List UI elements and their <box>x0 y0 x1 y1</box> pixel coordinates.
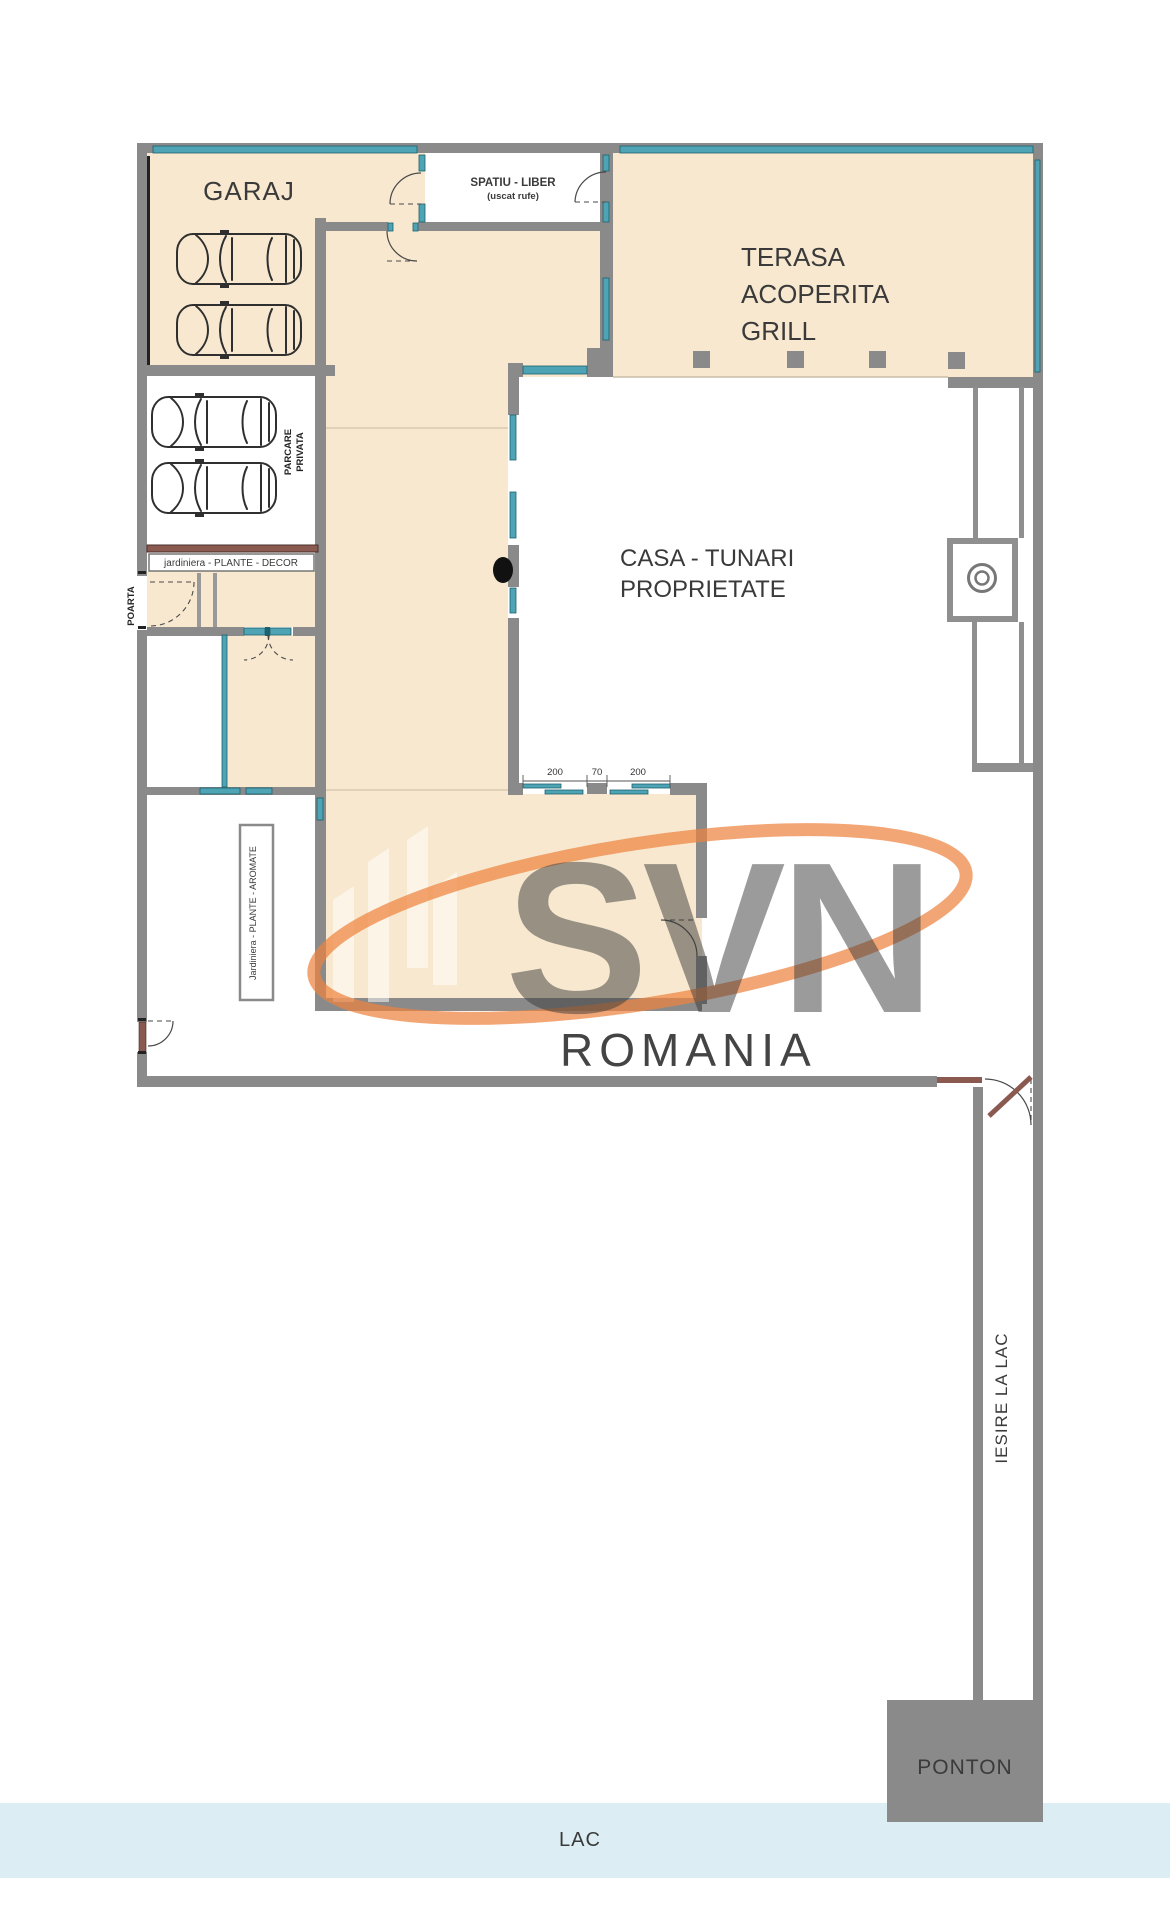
door-post <box>265 627 270 636</box>
dim-value: 200 <box>547 767 563 778</box>
wall-left <box>137 143 147 576</box>
window <box>603 278 609 340</box>
hall-left-wall <box>315 218 326 794</box>
terrace-label: TERASA <box>741 242 846 272</box>
wall-right <box>1033 143 1043 1700</box>
walkway-wall <box>972 622 977 763</box>
hinge-mark <box>138 571 146 574</box>
window <box>246 788 272 794</box>
window <box>317 798 323 820</box>
closet-line <box>213 573 217 627</box>
door-jamb <box>419 155 425 171</box>
hinge-mark <box>138 1051 146 1054</box>
terrace-label: GRILL <box>741 316 816 346</box>
property-label: CASA - TUNARI <box>620 545 794 572</box>
closet-line <box>197 573 201 627</box>
terrace-post <box>948 352 965 369</box>
floor-plan: jardiniera - PLANTE - DECOR Jardiniera -… <box>0 0 1170 1915</box>
slider-wall-corner <box>670 783 707 795</box>
hall-lower <box>326 377 508 794</box>
window <box>270 628 291 635</box>
sliding-door <box>523 784 561 788</box>
gate-leaf <box>937 1077 982 1083</box>
wall-block <box>587 348 613 377</box>
laundry-bottom-wall <box>315 222 388 231</box>
walkway-wall <box>1019 622 1024 763</box>
terrace-post <box>693 351 710 368</box>
wall-bottom <box>137 1076 937 1087</box>
window <box>510 415 516 460</box>
watermark-brand: ROMANIA <box>560 1024 817 1076</box>
window-band <box>153 146 417 153</box>
watermark-logo: SVN <box>505 817 929 1058</box>
slider-wall-center <box>587 783 607 794</box>
vestibule-wall <box>293 627 315 636</box>
door-jamb <box>603 155 609 171</box>
garage-bottom-wall <box>137 365 335 376</box>
sliding-door <box>632 784 670 788</box>
walkway-wall <box>1019 387 1024 538</box>
lake-path-wall <box>973 1087 983 1700</box>
laundry-bottom-wall <box>418 222 600 231</box>
garage-label: GARAJ <box>203 176 295 206</box>
door-jamb <box>388 223 393 231</box>
wall-left <box>137 630 147 1022</box>
hall-right-wall <box>508 618 519 787</box>
window <box>510 492 516 538</box>
vestibule-wall <box>147 627 244 636</box>
laundry-label: SPATIU - LIBER <box>470 177 556 189</box>
door-jamb <box>413 223 418 231</box>
pontoon-label: PONTON <box>917 1756 1012 1779</box>
wall-block <box>508 363 523 377</box>
planter-aromatic-label: Jardiniera - PLANTE - AROMATE <box>248 846 258 980</box>
grill-icon <box>969 565 996 592</box>
hall-right-wall <box>508 377 519 415</box>
lake-label: LAC <box>559 1829 601 1851</box>
terrace-post <box>787 351 804 368</box>
lake-exit-label: IESIRE LA LAC <box>992 1332 1011 1463</box>
planter-decor-bar <box>147 545 318 552</box>
door-jamb <box>603 202 609 222</box>
hinge-mark <box>138 1018 146 1021</box>
walkway-end-wall <box>972 763 1033 772</box>
side-door-leaf <box>139 1022 146 1052</box>
column-marker <box>493 557 513 583</box>
walkway-wall <box>973 387 978 538</box>
garden-fence <box>222 635 227 787</box>
pontoon: PONTON <box>887 1700 1043 1822</box>
laundry-sublabel: (uscat rufe) <box>487 191 539 202</box>
property-label: PROPRIETATE <box>620 576 786 603</box>
garage-door-line <box>147 156 150 365</box>
sliding-door <box>545 790 583 794</box>
gate-label: POARTA <box>126 586 137 626</box>
window-band <box>620 146 1033 153</box>
garage-extension <box>315 153 425 222</box>
slider-wall-anchor <box>508 783 523 795</box>
sliding-door <box>610 790 648 794</box>
planter-decor-label: jardiniera - PLANTE - DECOR <box>163 558 298 569</box>
entry-vestibule <box>147 571 315 627</box>
window <box>523 366 587 374</box>
hall-upper <box>315 222 600 377</box>
terrace-bottom-wall <box>948 377 1033 388</box>
dim-value: 70 <box>592 767 603 778</box>
parking-label: PARCARE <box>283 429 294 475</box>
dim-value: 200 <box>630 767 646 778</box>
parking-label: PRIVATA <box>295 432 306 472</box>
window <box>200 788 240 794</box>
terrace-post <box>869 351 886 368</box>
window-band <box>1035 160 1040 372</box>
door-jamb <box>419 204 425 222</box>
terrace-label: ACOPERITA <box>741 279 890 309</box>
hinge-mark <box>138 626 146 629</box>
garden-strip <box>222 635 315 787</box>
window <box>510 588 516 613</box>
window <box>244 628 265 635</box>
